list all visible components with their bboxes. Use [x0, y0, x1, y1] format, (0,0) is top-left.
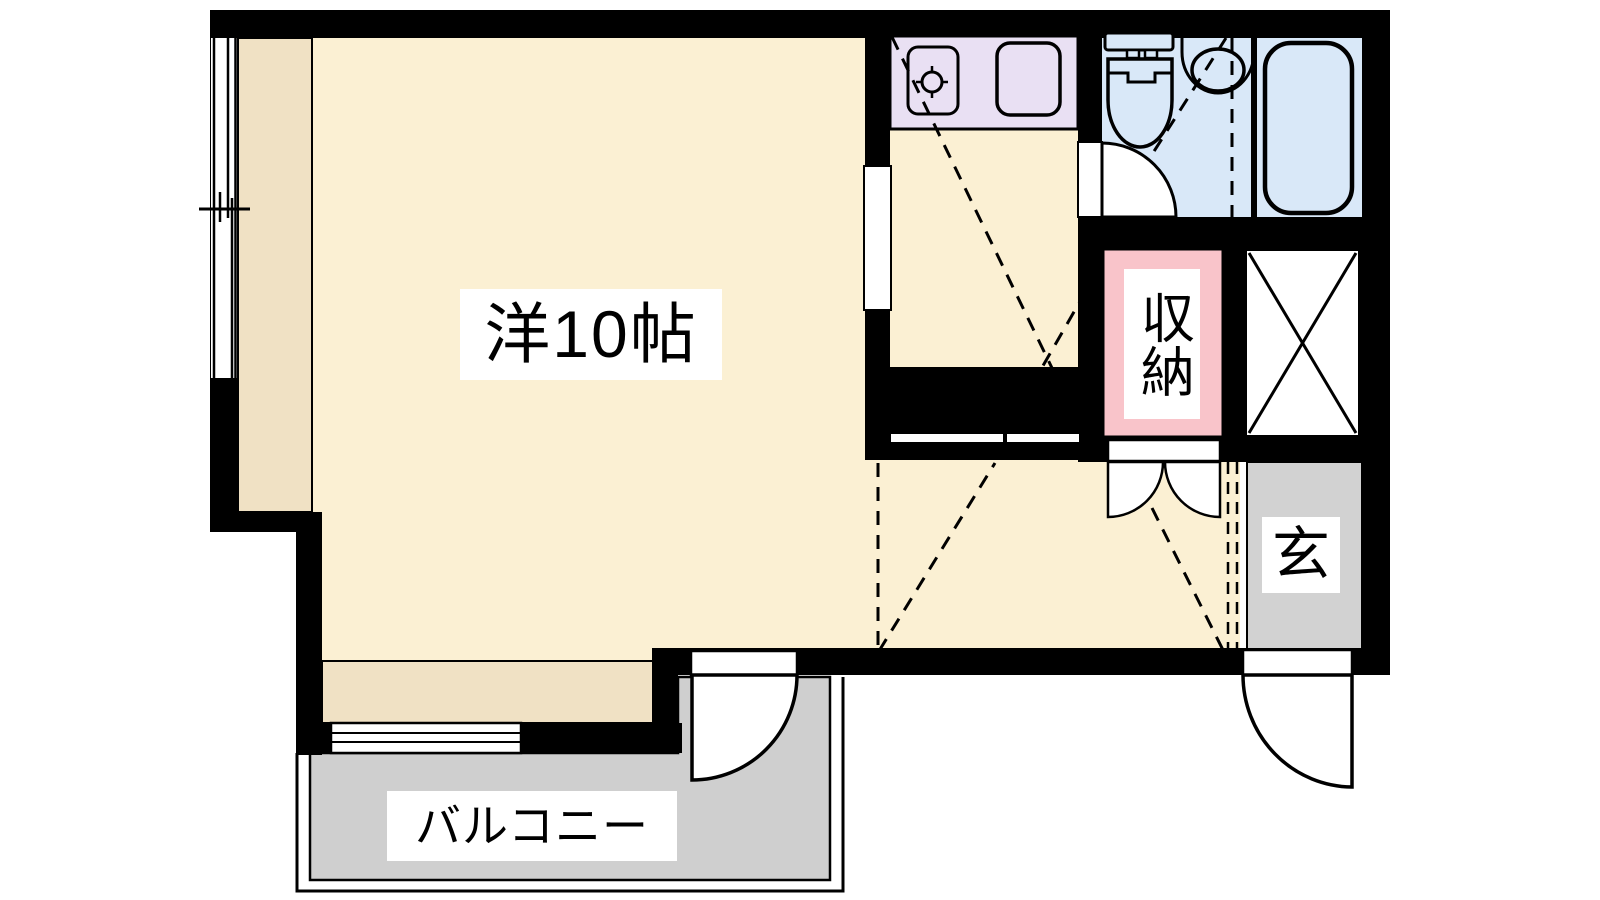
faucet-icon — [922, 72, 942, 92]
storage-label: 収納 — [1124, 269, 1200, 419]
wall-top — [210, 10, 1390, 38]
basin-bowl — [1192, 49, 1244, 91]
kitchen-entry-opening — [864, 166, 891, 310]
toilet-hinge-right — [1145, 50, 1157, 58]
wall-kitchen-bottom — [865, 367, 1100, 460]
wall-bath-left-lower — [1078, 217, 1103, 462]
kitchen-sliding-door-slit-1 — [891, 434, 1003, 442]
entrance-door-swing — [1243, 675, 1352, 787]
kitchen-sliding-door-slit-2 — [1007, 434, 1079, 442]
toilet — [1105, 33, 1173, 147]
kitchen-floor — [890, 129, 1078, 367]
toilet-hinge-left — [1127, 50, 1139, 58]
balcony-window-glass — [331, 723, 521, 753]
floorplan-drawing — [0, 0, 1600, 900]
entrance-door — [1243, 650, 1352, 787]
floorplan-canvas: 洋10帖 収納 玄 バルコニー — [0, 0, 1600, 900]
toilet-tank — [1105, 33, 1173, 50]
entrance-door-frame — [1243, 650, 1352, 675]
storage-door-frame — [1108, 440, 1220, 461]
kitchen-stove — [997, 43, 1060, 115]
wall-step-vertical — [296, 512, 322, 755]
wall-bath-bottom — [1078, 217, 1390, 249]
wall-kitchen-right — [1078, 10, 1102, 142]
wall-right — [1362, 10, 1390, 675]
balcony-door-leaf — [691, 651, 797, 675]
balcony-label: バルコニー — [387, 791, 677, 861]
wall-storage-gap — [1223, 249, 1245, 437]
floor-accent-bottom — [322, 661, 655, 723]
main-room-label: 洋10帖 — [460, 289, 722, 380]
bathroom-door-leaf — [1078, 142, 1102, 217]
entrance-label: 玄 — [1262, 517, 1340, 593]
balcony-sliding-window — [331, 723, 521, 753]
bathtub — [1265, 43, 1352, 213]
floor-accent-left — [238, 38, 312, 512]
